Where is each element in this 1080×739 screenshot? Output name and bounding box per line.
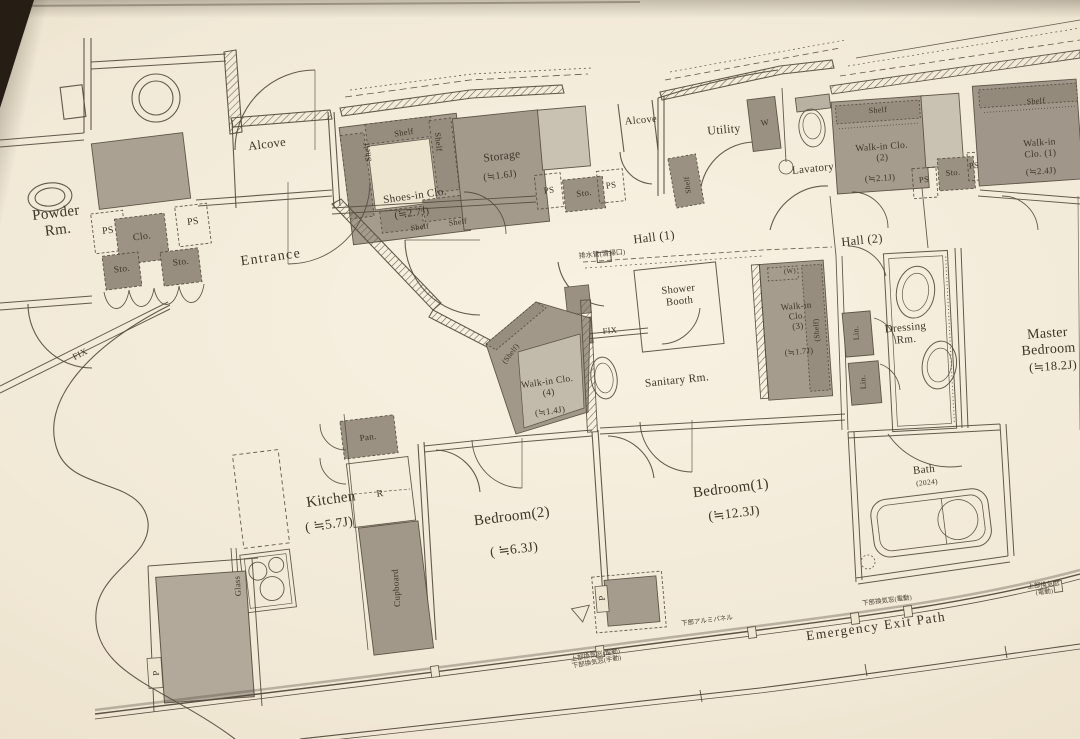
bathtub-icon	[869, 487, 993, 559]
storage-label: Sto.	[945, 168, 960, 179]
bath-walls	[848, 424, 1014, 584]
kitchen-fixtures	[231, 414, 434, 655]
storage-label: Sto.	[576, 187, 593, 199]
room-label-walk-in-clo-1: Walk-in Clo. (1)	[1019, 137, 1060, 161]
ps-label: PS	[969, 161, 980, 171]
ps-label: PS	[186, 216, 199, 229]
door-arc	[472, 440, 522, 488]
door-arc	[888, 434, 962, 467]
room-label-powder-rm: Powder Rm.	[31, 202, 82, 241]
bedroom2-shaft	[571, 571, 666, 633]
pipe-label: P	[597, 595, 607, 601]
washer-label: W	[760, 118, 769, 128]
door-arc	[1002, 196, 1038, 230]
door-arc	[852, 192, 888, 228]
bottom-left-shaft	[147, 558, 262, 712]
room-label-dressing-rm: Dressing Rm.	[884, 320, 928, 348]
level-marker-icon	[571, 605, 590, 623]
linen-label: Lin.	[859, 375, 869, 390]
ps-label: PS	[101, 225, 114, 238]
room-label-shower-booth: Shower Booth	[661, 283, 697, 310]
door-arc	[662, 308, 700, 344]
door-arc	[436, 450, 480, 492]
linen-label: Lin.	[852, 326, 862, 341]
room-label-walk-in-clo-2: Walk-in Clo. (2)	[855, 141, 909, 166]
door-arc	[770, 186, 828, 230]
door-arc	[700, 142, 755, 197]
room-label-bath: Bath	[912, 463, 935, 478]
storage-label: Sto.	[113, 264, 130, 277]
closet-label: Clo.	[132, 230, 151, 243]
area-label: (≒2.4J)	[1025, 165, 1056, 177]
toilet-icon	[797, 108, 827, 149]
refrigerator-label: R	[376, 488, 384, 500]
shelf-label: Shelf	[1027, 97, 1046, 107]
shelf-label: Shelf	[432, 132, 443, 152]
room-label-walk-in-clo-3: Walk-in Clo. (3)	[780, 300, 813, 333]
storage-label: Sto.	[172, 257, 189, 270]
ps-label: PS	[543, 184, 555, 195]
area-label: (≒2.1J)	[864, 172, 895, 184]
sink-icon	[893, 264, 939, 321]
fix-label: FIX	[602, 326, 617, 337]
door-arc	[620, 152, 652, 184]
glass-label: Glass	[233, 575, 244, 596]
pantry-label: Pan.	[359, 431, 377, 443]
shelf-label: Shelf	[869, 106, 888, 116]
room-label-master-bedroom: Master Bedroom	[1020, 324, 1076, 359]
floorplan-linework	[0, 0, 1080, 739]
shelf-label: (Shelf)	[812, 318, 822, 341]
pipe-label: P	[151, 670, 161, 676]
ps-label: PS	[605, 179, 617, 190]
walk-in-closet-3	[751, 246, 900, 430]
ps-label: PS	[919, 175, 930, 185]
paper-edge	[0, 2, 640, 6]
counter	[232, 450, 289, 549]
door-arc	[608, 436, 654, 478]
washer-label: (W)	[784, 268, 797, 277]
powder-room-walls	[0, 38, 332, 368]
door-arc	[848, 246, 886, 276]
